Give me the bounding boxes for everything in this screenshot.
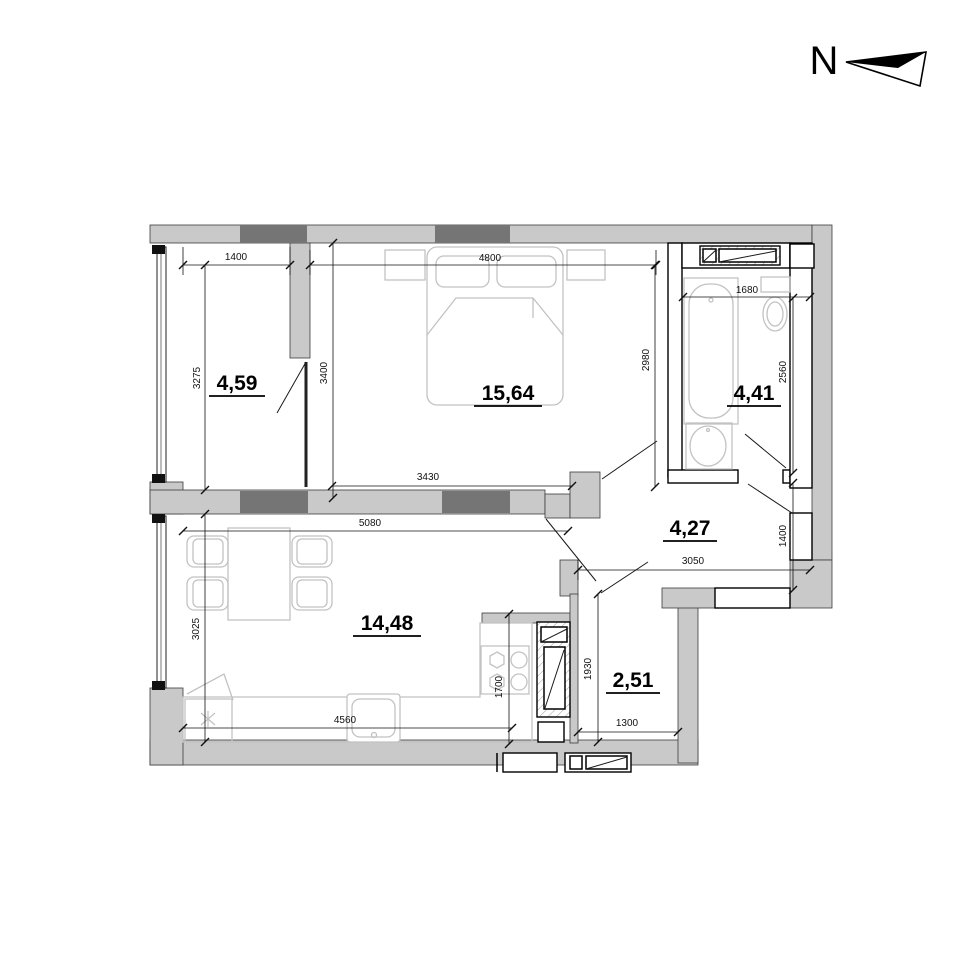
dim-text: 3275 (192, 366, 203, 389)
bedroom-door-swing (602, 441, 657, 479)
dim-text: 5080 (359, 518, 382, 529)
dim-text: 2980 (641, 348, 652, 371)
dim-text: 3025 (191, 617, 202, 640)
hall-area-label: 4,27 (670, 517, 711, 540)
dim-text: 1400 (225, 252, 248, 263)
bedroom-area-label: 15,64 (482, 382, 535, 405)
dim-storage-height: 1930 (583, 590, 602, 746)
dim-text: 3400 (319, 361, 330, 384)
blanket-fold (427, 298, 563, 335)
window-band-lower (152, 514, 166, 690)
dim-text: 2560 (778, 360, 789, 383)
vent-shaft-kitchen (537, 622, 570, 717)
bathtub (684, 278, 738, 424)
dim-text: 1300 (616, 718, 639, 729)
window-band-upper (152, 245, 166, 483)
dining-table (228, 528, 290, 620)
bathroom-furniture (684, 277, 790, 469)
entry-door-swing (748, 484, 792, 513)
kitchen-furniture (183, 623, 532, 742)
room-left-area-label: 4,59 (217, 372, 258, 395)
dim-room1-height: 3275 (192, 261, 209, 494)
dim-bedroom-width: 4800 (306, 250, 660, 275)
dim-text: 1400 (778, 524, 789, 547)
bathroom-area-label: 4,41 (734, 382, 775, 405)
toilet-tank (761, 277, 790, 292)
dim-room1-door-wall: 3400 (319, 239, 337, 502)
dim-living-width: 5080 (179, 518, 572, 535)
snowflake-icon (201, 711, 215, 727)
north-label: N (810, 39, 839, 83)
north-arrow: N (810, 39, 926, 86)
dim-text: 3050 (682, 556, 705, 567)
dim-text: 3430 (417, 472, 440, 483)
floor-plan: 1400 4800 1680 3275 3400 (0, 0, 960, 960)
dim-text: 1930 (583, 657, 594, 680)
dim-text: 1680 (736, 285, 759, 296)
dim-hall-width: 3050 (574, 556, 814, 580)
living-kitchen-area-label: 14,48 (361, 612, 414, 635)
dim-text: 4560 (334, 715, 357, 726)
storage-door-swing (601, 562, 648, 593)
dim-storage-width: 1300 (574, 718, 682, 736)
dim-bedroom-height: 2980 (641, 261, 659, 491)
dim-text: 4800 (479, 253, 502, 264)
dim-room1-width: 1400 (179, 247, 294, 275)
storage-area-label: 2,51 (613, 669, 654, 692)
bathroom-door-swing (745, 434, 786, 468)
room-left-door-swing (277, 362, 306, 413)
floor-plan-page: 1400 4800 1680 3275 3400 (0, 0, 960, 960)
vent-shaft-bathroom (700, 246, 780, 265)
dim-living-height: 3025 (191, 510, 209, 746)
pillow-right (497, 256, 556, 287)
dining-furniture (187, 528, 332, 620)
dim-bedroom-bottom: 3430 (328, 472, 576, 490)
dim-text: 1700 (494, 675, 505, 698)
